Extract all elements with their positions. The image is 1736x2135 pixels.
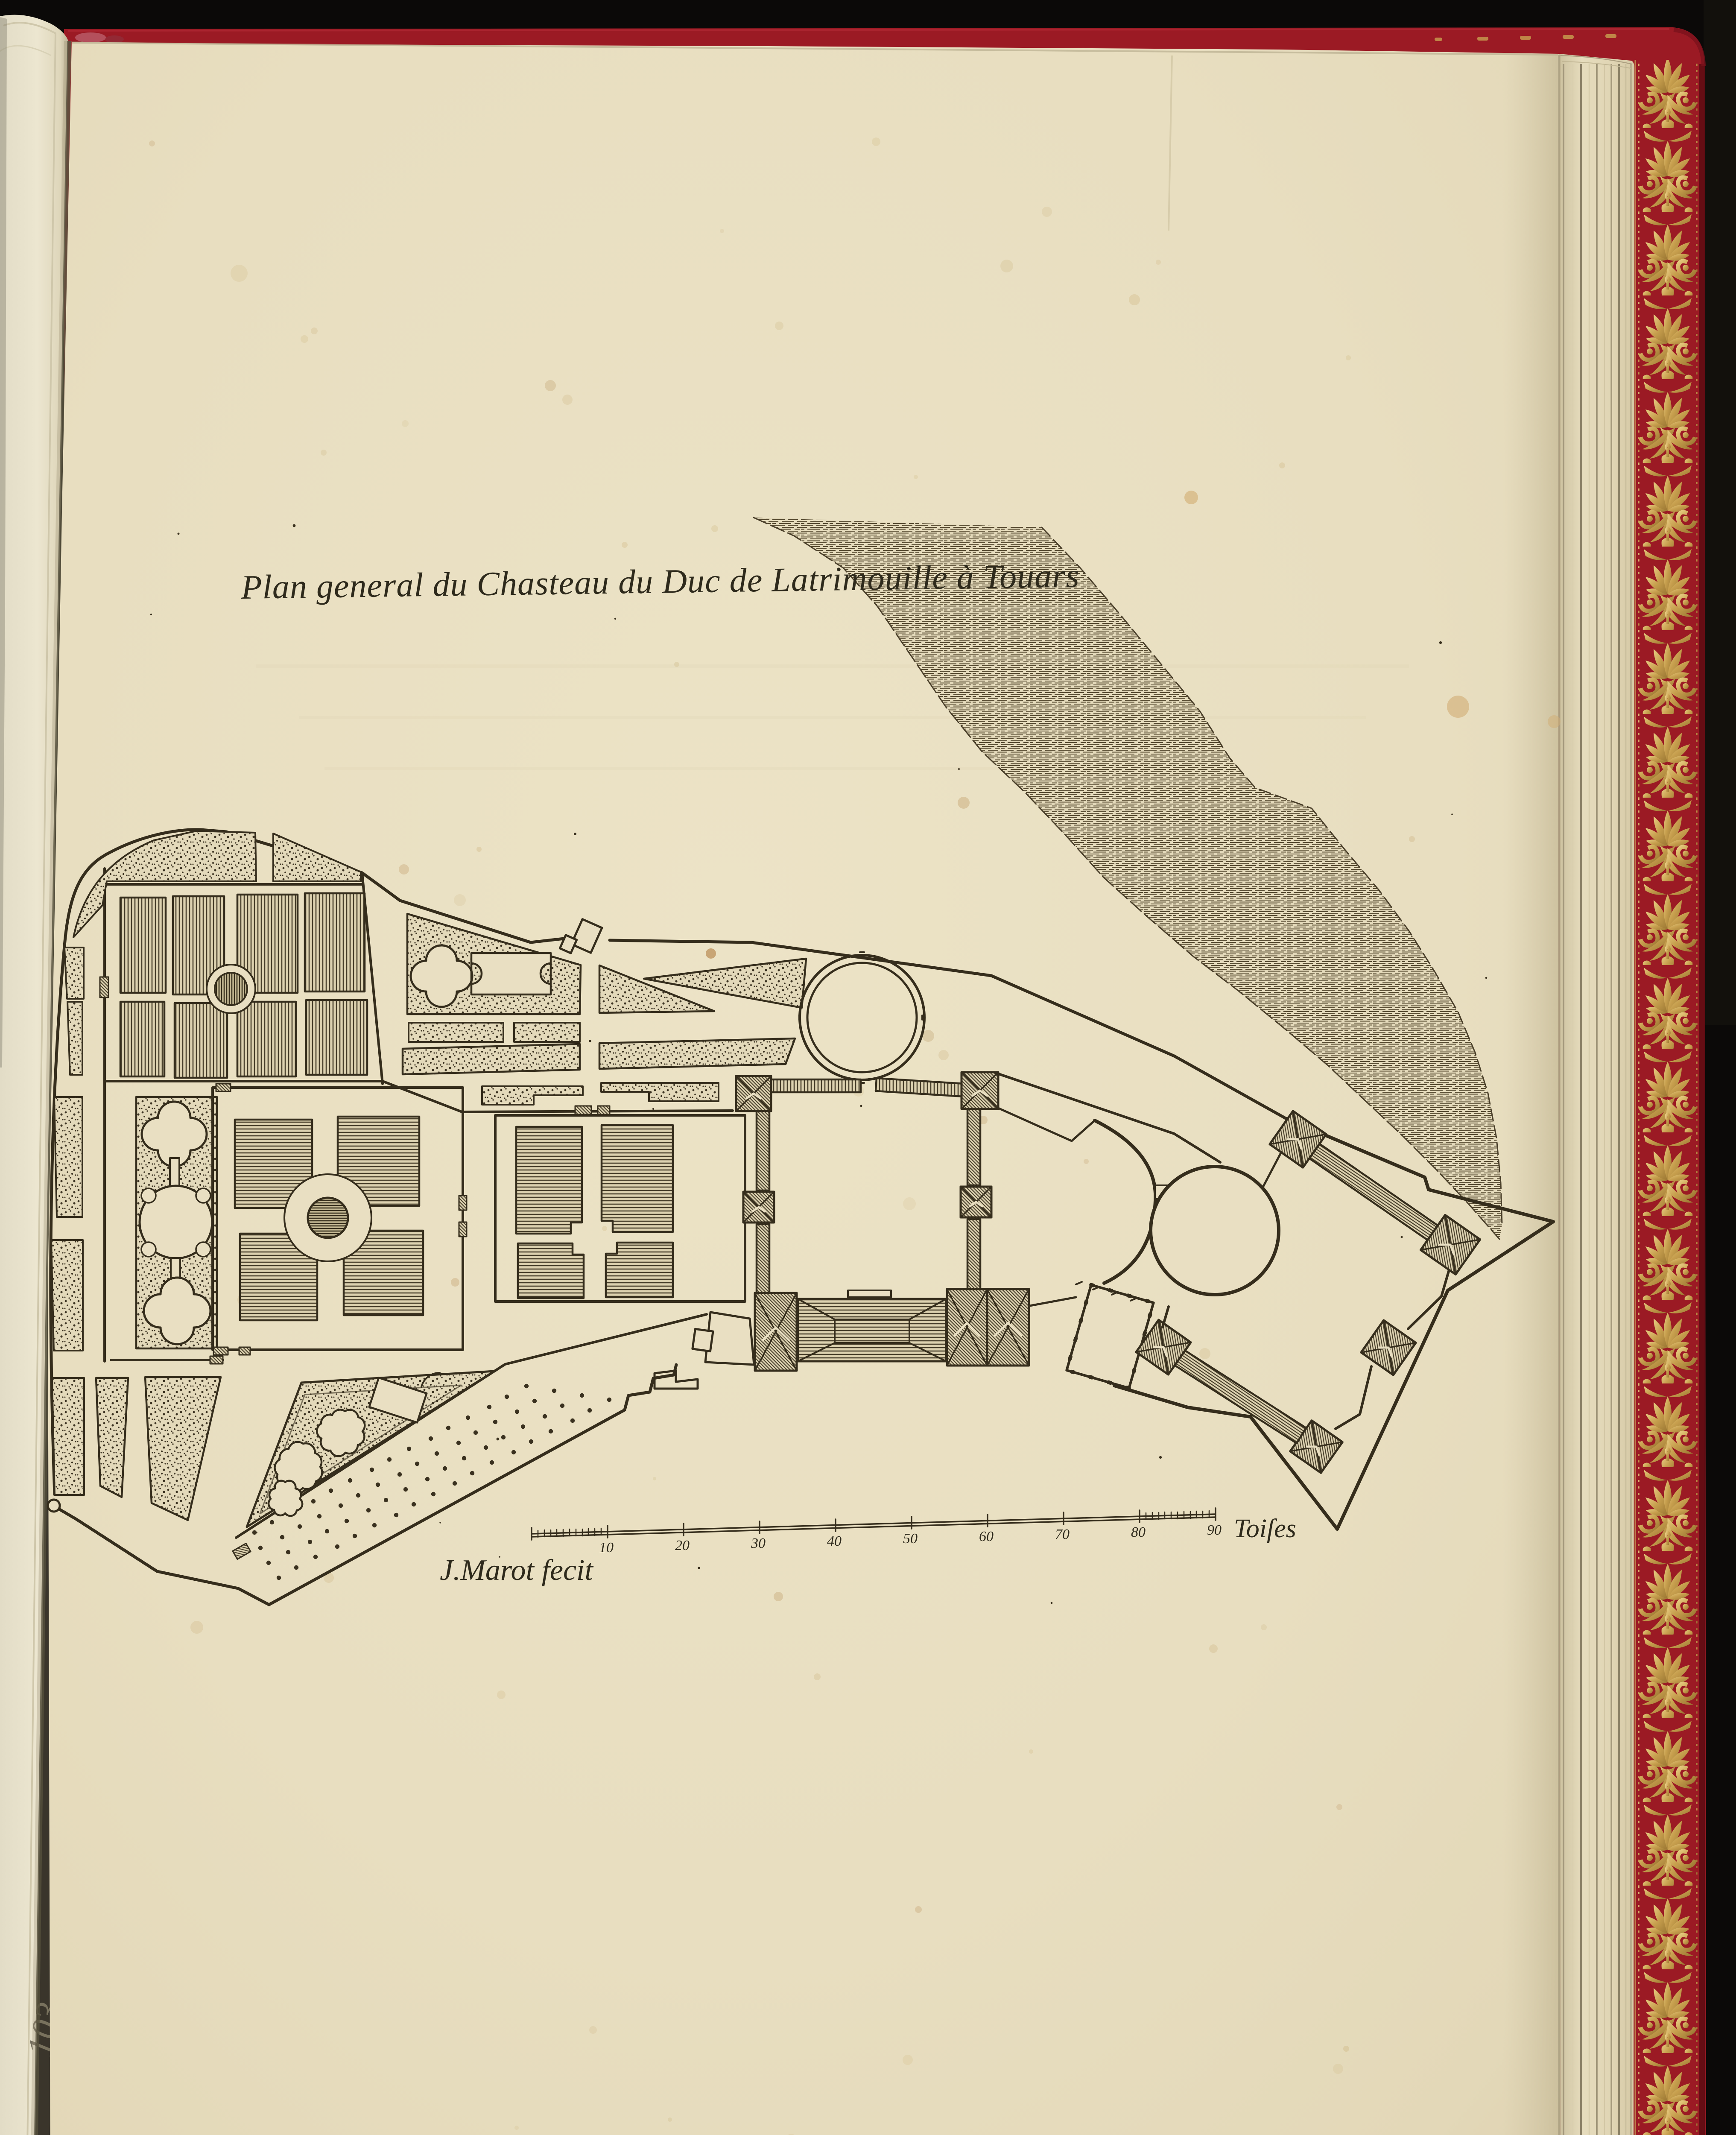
svg-text:10: 10 (599, 1540, 614, 1556)
svg-text:20: 20 (675, 1538, 690, 1553)
svg-text:90: 90 (1207, 1522, 1222, 1538)
svg-text:80: 80 (1131, 1524, 1146, 1540)
svg-text:40: 40 (827, 1533, 842, 1549)
svg-text:50: 50 (903, 1531, 918, 1547)
svg-text:60: 60 (979, 1529, 994, 1544)
svg-text:Toiſes: Toiſes (1234, 1514, 1296, 1543)
svg-text:J.Marot fecit: J.Marot fecit (440, 1554, 594, 1587)
svg-text:30: 30 (751, 1535, 766, 1551)
svg-text:70: 70 (1055, 1527, 1070, 1542)
